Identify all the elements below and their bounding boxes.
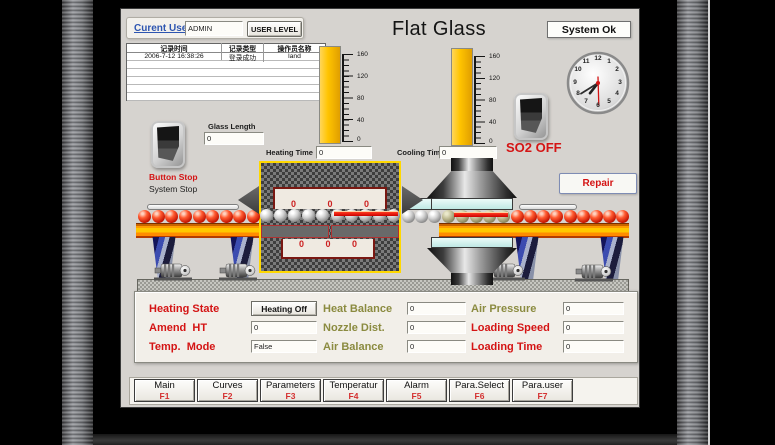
glass-sheet-right [519, 204, 577, 210]
roller-ball [302, 209, 315, 222]
roller-ball [165, 210, 178, 223]
drive-motor-icon [154, 261, 192, 281]
rollers-right-conveyor [511, 209, 629, 223]
hot-glass-bar [454, 212, 508, 217]
log-operator: land [264, 53, 325, 60]
so2-status-label: SO2 OFF [506, 140, 562, 155]
roller-ball [288, 209, 301, 222]
panel-pc: { "header": { "current_user_label": "Cur… [0, 0, 775, 445]
air-pressure-input[interactable] [563, 302, 624, 315]
glass-sheet-left [147, 204, 239, 210]
event-log-table: 记录时间 记录类型 操作员名称 2006-7-12 16:38:26 登录成功 … [126, 43, 326, 101]
left-conveyor-beam [136, 223, 263, 238]
cooling-gauge-bar [451, 48, 473, 146]
roller-ball [179, 210, 192, 223]
heating-gauge-ticks [342, 54, 354, 142]
heating-gauge-bar [319, 46, 341, 144]
log-col-operator: 操作员名称 [264, 43, 325, 53]
heating-state-button[interactable]: Heating Off [251, 301, 317, 316]
repair-button[interactable]: Repair [559, 173, 637, 194]
loading-speed-label: Loading Speed [471, 322, 563, 334]
cooling-gauge: 160120 8040 0 [451, 48, 511, 148]
bezel-bottom-edge [93, 434, 677, 445]
heat-balance-input[interactable] [407, 302, 466, 315]
bezel-edge-highlight [708, 0, 710, 445]
roller-ball [577, 210, 590, 223]
air-balance-input[interactable] [407, 340, 466, 353]
cooling-time-label: Cooling Time [397, 148, 444, 157]
system-stop-label: System Stop [149, 184, 197, 194]
current-user-link[interactable]: Curent User [134, 23, 191, 34]
heating-time-label: Heating Time [266, 148, 313, 157]
bezel-metal-right [677, 0, 708, 445]
menu-para-user-button[interactable]: Para.userF7 [512, 379, 573, 402]
current-user-box: Curent User USER LEVEL [126, 17, 304, 39]
furnace-slab [331, 225, 399, 238]
nozzle-dist-input[interactable] [407, 321, 466, 334]
furnace-slab [261, 225, 329, 238]
roller-ball [193, 210, 206, 223]
glass-length-input[interactable] [204, 132, 264, 145]
button-stop-label: Button Stop [149, 172, 198, 182]
glass-length-label: Glass Length [208, 122, 256, 131]
clock-numbers: 121 23 45 67 89 1011 [566, 51, 630, 115]
log-row-empty [127, 93, 325, 101]
temp-mode-input[interactable] [251, 340, 317, 353]
log-row: 2006-7-12 16:38:26 登录成功 land [127, 53, 325, 61]
heating-time-input[interactable] [316, 146, 372, 159]
furnace-top-zone: 0 0 0 [273, 187, 387, 209]
roller-ball [603, 210, 616, 223]
analog-clock: 121 23 45 67 89 1011 [566, 51, 630, 115]
loading-speed-input[interactable] [563, 321, 624, 334]
current-user-input[interactable] [185, 21, 243, 36]
menu-para-select-button[interactable]: Para.SelectF6 [449, 379, 510, 402]
log-col-time: 记录时间 [127, 43, 222, 53]
rocker-icon [520, 98, 542, 134]
nozzle-dist-label: Nozzle Dist. [323, 322, 407, 334]
system-status-button[interactable]: System Ok [547, 21, 631, 38]
amend-ht-input[interactable] [251, 321, 317, 334]
roller-ball [316, 209, 329, 222]
cooling-glass-top [431, 198, 513, 210]
process-parameter-panel: Heating State Heating Off Heat Balance A… [134, 291, 638, 363]
cooling-duct-bottom [451, 273, 493, 285]
furnace-bottom-value: 0 [352, 239, 357, 249]
roller-ball [564, 210, 577, 223]
roller-ball [206, 210, 219, 223]
so2-switch[interactable] [514, 93, 548, 140]
roller-ball [233, 210, 246, 223]
roller-ball [537, 210, 550, 223]
log-row-empty [127, 61, 325, 69]
roller-ball [550, 210, 563, 223]
loading-time-label: Loading Time [471, 341, 563, 353]
cooling-glass-bottom [431, 237, 513, 248]
drive-motor-icon [219, 261, 257, 281]
roller-ball [428, 210, 441, 223]
furnace-bottom-zone: 0 0 0 [281, 239, 375, 259]
temp-mode-label: Temp. Mode [149, 341, 251, 353]
air-balance-label: Air Balance [323, 341, 407, 353]
menu-alarm-button[interactable]: AlarmF5 [386, 379, 447, 402]
bezel-metal-left [62, 0, 93, 445]
heating-gauge: 160120 8040 0 [319, 46, 379, 146]
system-stop-switch[interactable] [151, 121, 185, 168]
log-row-empty [127, 85, 325, 93]
loading-time-input[interactable] [563, 340, 624, 353]
log-row-empty [127, 77, 325, 85]
log-type: 登录成功 [222, 52, 264, 62]
air-pressure-label: Air Pressure [471, 303, 563, 315]
cooling-gauge-ticks [474, 56, 486, 144]
amend-ht-label: Amend HT [149, 322, 251, 334]
rollers-left-conveyor [138, 209, 260, 223]
page-title: Flat Glass [359, 18, 519, 41]
menu-parameters-button[interactable]: ParametersF3 [260, 379, 321, 402]
roller-ball [590, 210, 603, 223]
roller-ball [415, 210, 428, 223]
furnace-bottom-value: 0 [325, 239, 330, 249]
roller-ball [260, 209, 273, 222]
rollers-transfer [402, 209, 440, 223]
heating-state-label: Heating State [149, 303, 251, 315]
roller-ball [616, 210, 629, 223]
hmi-screen: Curent User USER LEVEL 记录时间 记录类型 操作员名称 2… [120, 8, 640, 408]
log-time: 2006-7-12 16:38:26 [127, 53, 222, 60]
furnace-bottom-value: 0 [299, 239, 304, 249]
roller-ball [152, 210, 165, 223]
log-row-empty [127, 69, 325, 77]
user-level-button[interactable]: USER LEVEL [247, 21, 302, 37]
roller-ball [511, 210, 524, 223]
menu-curves-button[interactable]: CurvesF2 [197, 379, 258, 402]
roller-ball [524, 210, 537, 223]
rocker-icon [157, 126, 179, 162]
roller-ball [220, 210, 233, 223]
cooling-duct-top [451, 158, 493, 171]
roller-ball [274, 209, 287, 222]
cooling-hood-top [427, 171, 517, 198]
heat-balance-label: Heat Balance [323, 303, 407, 315]
menu-temperature-button[interactable]: TemperaturF4 [323, 379, 384, 402]
drive-motor-icon [575, 262, 613, 282]
roller-ball [138, 210, 151, 223]
hot-glass-bar [334, 211, 398, 216]
menu-main-button[interactable]: MainF1 [134, 379, 195, 402]
right-conveyor-beam [439, 223, 629, 238]
